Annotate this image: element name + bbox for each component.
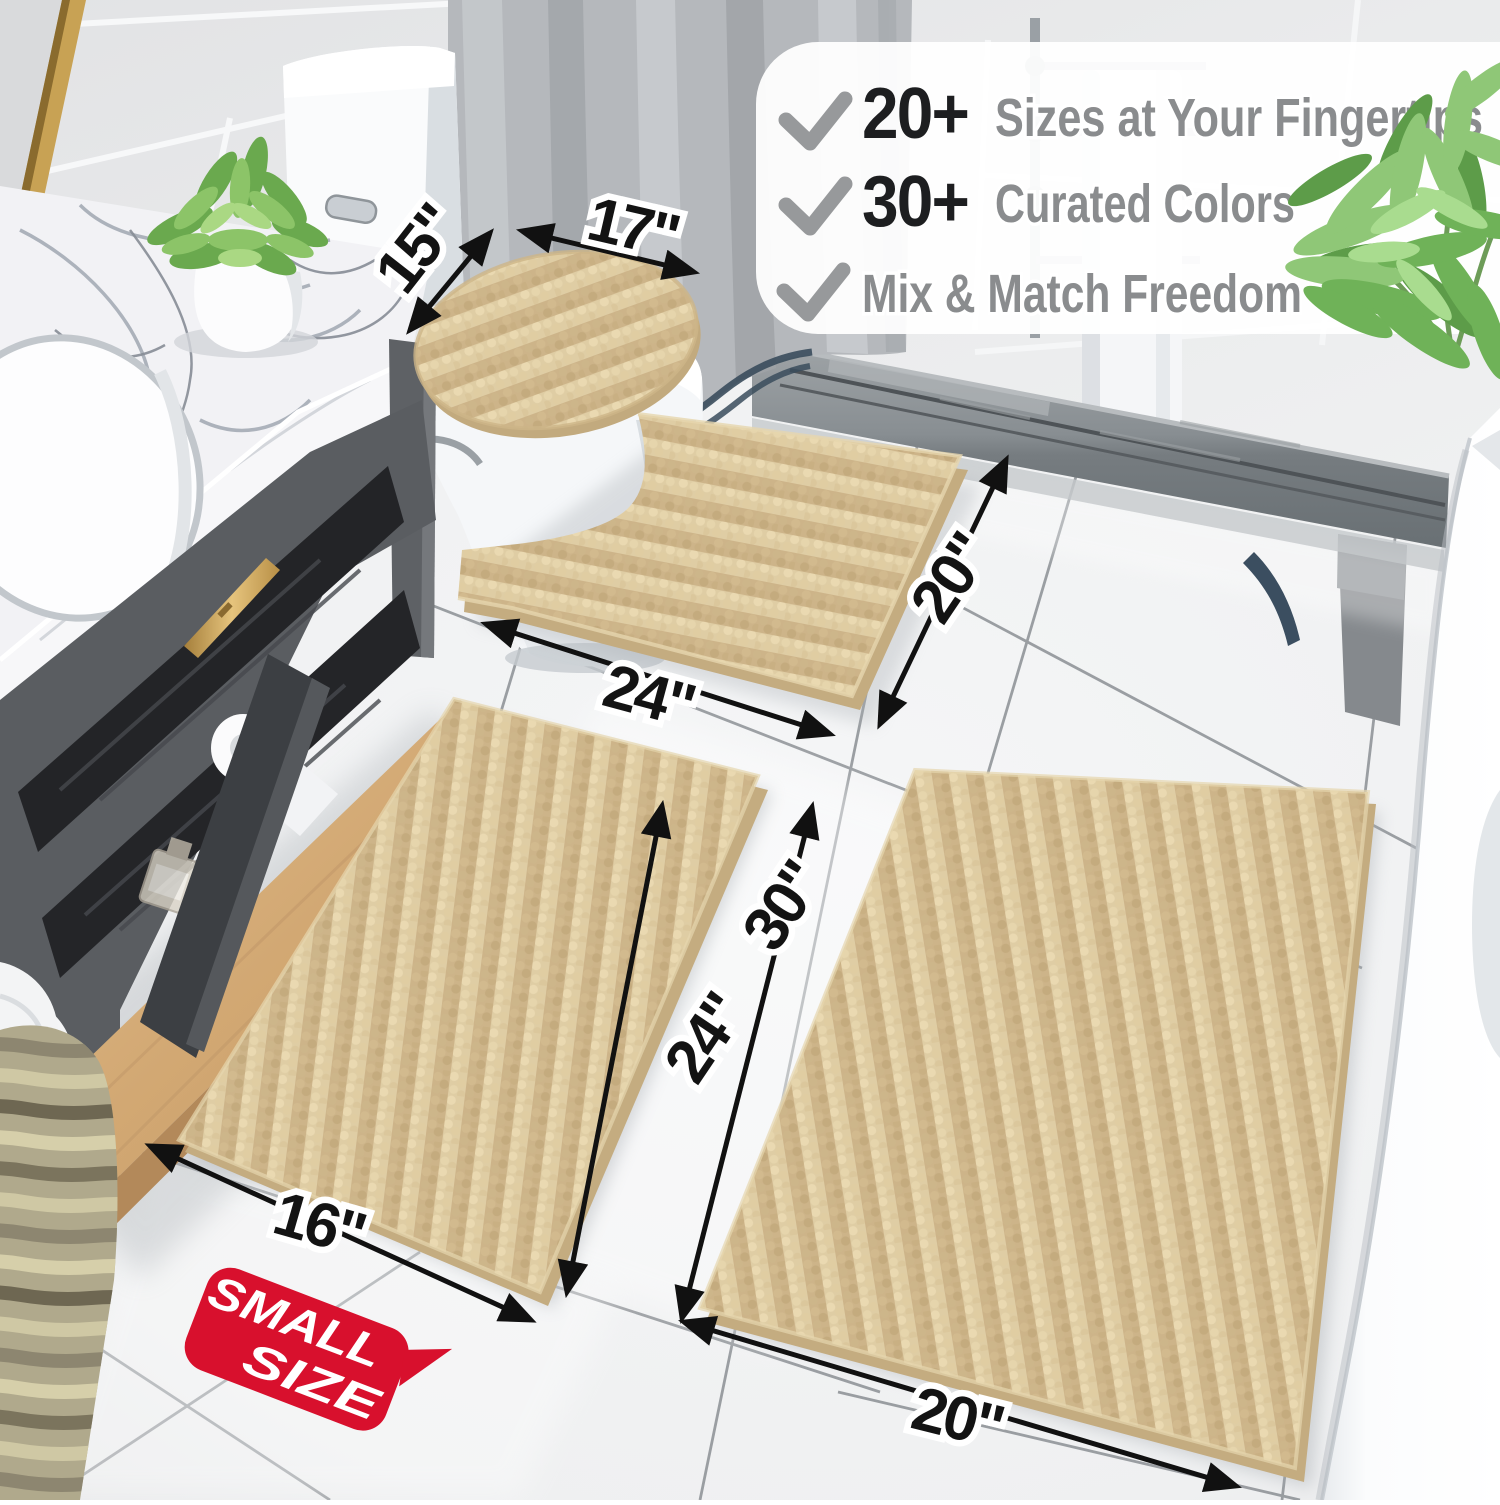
svg-text:Mix & Match Freedom: Mix & Match Freedom (862, 264, 1302, 324)
svg-text:Curated Colors: Curated Colors (995, 174, 1295, 234)
svg-text:20+: 20+ (862, 74, 968, 154)
svg-text:30+: 30+ (862, 162, 968, 242)
